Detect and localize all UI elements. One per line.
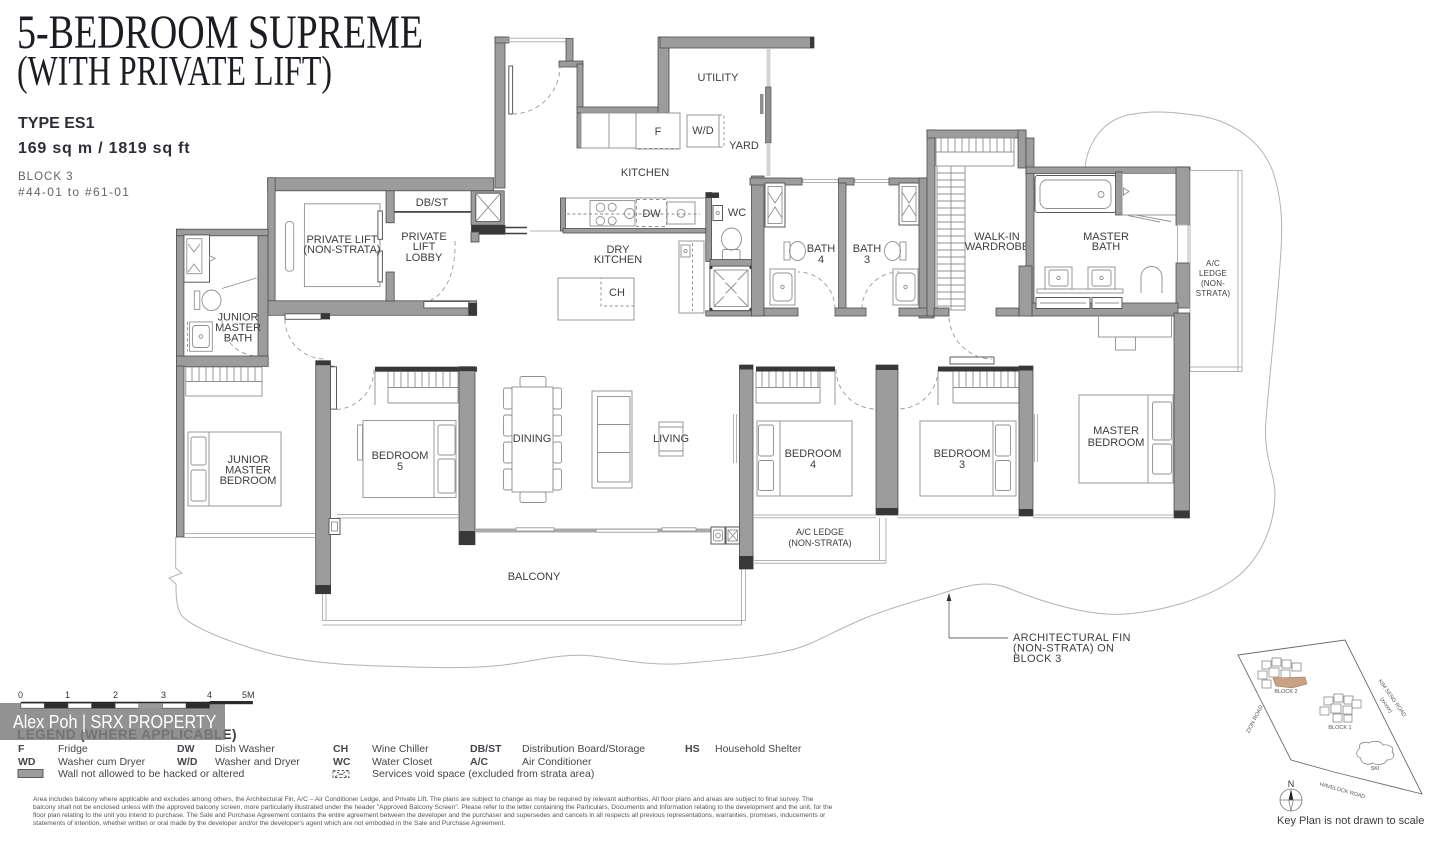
svg-text:WARDROBE: WARDROBE bbox=[965, 241, 1029, 253]
svg-text:KITCHEN: KITCHEN bbox=[594, 254, 642, 266]
svg-text:4: 4 bbox=[207, 690, 212, 700]
svg-text:(NON-STRATA): (NON-STRATA) bbox=[303, 244, 380, 256]
svg-text:DINING: DINING bbox=[513, 433, 552, 445]
svg-text:(NON-STRATA): (NON-STRATA) bbox=[788, 538, 851, 548]
svg-text:SKI: SKI bbox=[1371, 766, 1380, 772]
svg-text:BATH: BATH bbox=[224, 333, 253, 345]
svg-text:STRATA): STRATA) bbox=[1196, 289, 1231, 298]
svg-text:N: N bbox=[1288, 779, 1295, 789]
svg-text:5: 5 bbox=[397, 461, 403, 473]
svg-text:LOBBY: LOBBY bbox=[406, 252, 443, 264]
svg-text:BATH: BATH bbox=[1092, 241, 1121, 253]
svg-text:UTILITY: UTILITY bbox=[698, 72, 740, 84]
svg-text:KITCHEN: KITCHEN bbox=[621, 167, 669, 179]
svg-text:2: 2 bbox=[113, 690, 118, 700]
svg-text:3: 3 bbox=[161, 690, 166, 700]
svg-text:BALCONY: BALCONY bbox=[508, 571, 561, 583]
svg-text:BLOCK 1: BLOCK 1 bbox=[1328, 725, 1351, 731]
svg-text:LIVING: LIVING bbox=[653, 433, 689, 445]
svg-text:1: 1 bbox=[65, 690, 70, 700]
svg-text:4: 4 bbox=[810, 459, 816, 471]
svg-text:A/C LEDGE: A/C LEDGE bbox=[796, 527, 844, 537]
svg-text:F: F bbox=[655, 126, 662, 138]
svg-text:CH: CH bbox=[609, 287, 625, 299]
svg-text:BLOCK 3: BLOCK 3 bbox=[1013, 653, 1062, 665]
svg-text:LEDGE: LEDGE bbox=[1199, 269, 1227, 278]
svg-text:W/D: W/D bbox=[692, 125, 713, 137]
svg-text:5M: 5M bbox=[242, 690, 255, 700]
svg-text:A/C: A/C bbox=[1206, 259, 1220, 268]
svg-text:MASTER: MASTER bbox=[1093, 425, 1139, 437]
svg-text:3: 3 bbox=[959, 459, 965, 471]
svg-text:4: 4 bbox=[818, 254, 824, 266]
svg-text:(NON-: (NON- bbox=[1201, 279, 1225, 288]
svg-text:ZION ROAD: ZION ROAD bbox=[1245, 705, 1264, 735]
svg-text:DB/ST: DB/ST bbox=[416, 197, 449, 209]
svg-text:3: 3 bbox=[864, 254, 870, 266]
svg-text:DW: DW bbox=[642, 208, 661, 220]
svg-text:BEDROOM: BEDROOM bbox=[1088, 437, 1145, 449]
svg-text:0: 0 bbox=[18, 690, 23, 700]
svg-text:BLOCK 2: BLOCK 2 bbox=[1274, 689, 1297, 695]
svg-text:YARD: YARD bbox=[729, 140, 759, 152]
svg-text:BEDROOM: BEDROOM bbox=[220, 475, 277, 487]
svg-text:WC: WC bbox=[728, 207, 746, 219]
svg-text:HAVELOCK ROAD: HAVELOCK ROAD bbox=[1319, 782, 1366, 801]
